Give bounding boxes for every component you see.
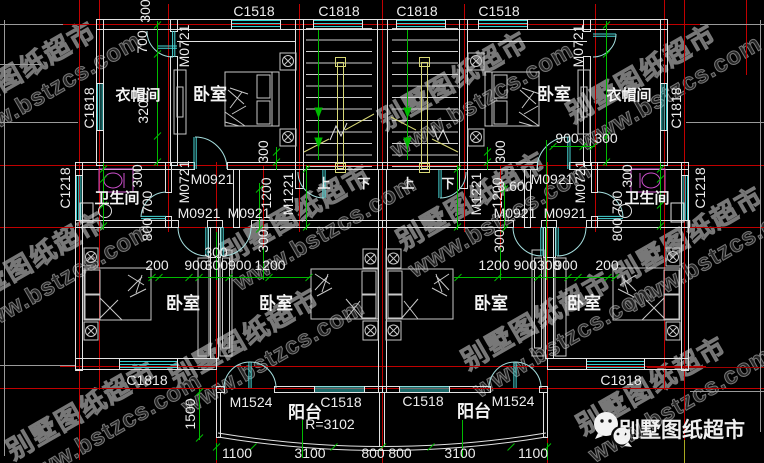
svg-text:C1518: C1518 xyxy=(478,3,519,19)
svg-text:下: 下 xyxy=(357,176,370,191)
svg-text:1100: 1100 xyxy=(222,445,252,461)
svg-text:300: 300 xyxy=(204,244,228,260)
svg-text:M0921: M0921 xyxy=(178,205,221,221)
svg-text:M1524: M1524 xyxy=(492,393,535,409)
svg-text:C1818: C1818 xyxy=(600,372,641,388)
svg-text:3200: 3200 xyxy=(135,92,151,123)
svg-text:M1221: M1221 xyxy=(468,172,484,215)
svg-text:别墅图纸超市: 别墅图纸超市 xyxy=(618,418,745,442)
svg-text:衣帽间: 衣帽间 xyxy=(606,86,651,104)
svg-text:卫生间: 卫生间 xyxy=(624,189,669,207)
svg-text:300: 300 xyxy=(255,229,271,253)
svg-text:C1218: C1218 xyxy=(692,167,708,208)
svg-text:M1524: M1524 xyxy=(230,394,273,410)
svg-text:300: 300 xyxy=(492,140,508,164)
svg-text:卧室: 卧室 xyxy=(193,84,227,104)
svg-text:M1221: M1221 xyxy=(280,172,296,215)
svg-text:卧室: 卧室 xyxy=(259,293,293,313)
svg-text:300: 300 xyxy=(619,164,635,188)
svg-text:M0921: M0921 xyxy=(191,171,234,187)
svg-text:M0921: M0921 xyxy=(544,205,587,221)
svg-text:M0721: M0721 xyxy=(570,24,586,67)
svg-text:下: 下 xyxy=(441,176,454,191)
svg-text:3100: 3100 xyxy=(444,445,475,461)
svg-text:1200: 1200 xyxy=(489,177,505,208)
svg-text:C1818: C1818 xyxy=(668,87,684,128)
svg-text:R=3102: R=3102 xyxy=(305,416,355,432)
svg-text:M0721: M0721 xyxy=(572,160,588,203)
svg-text:900: 900 xyxy=(555,130,579,146)
svg-text:800: 800 xyxy=(361,445,385,461)
svg-text:卧室: 卧室 xyxy=(166,293,200,313)
svg-text:900: 900 xyxy=(554,257,578,273)
svg-text:卫生间: 卫生间 xyxy=(94,189,139,207)
svg-text:300: 300 xyxy=(137,0,153,23)
svg-text:C1818: C1818 xyxy=(81,87,97,128)
svg-text:3100: 3100 xyxy=(294,445,325,461)
svg-text:300: 300 xyxy=(129,164,145,188)
svg-text:C1818: C1818 xyxy=(318,3,359,19)
svg-text:700: 700 xyxy=(134,30,150,54)
svg-text:M0721: M0721 xyxy=(176,160,192,203)
svg-text:200: 200 xyxy=(595,257,619,273)
svg-text:上: 上 xyxy=(317,176,330,191)
svg-text:1200: 1200 xyxy=(254,257,285,273)
svg-text:1500: 1500 xyxy=(182,398,198,429)
svg-text:800 700: 800 700 xyxy=(609,190,625,241)
svg-text:1200: 1200 xyxy=(258,177,274,208)
svg-text:C1818: C1818 xyxy=(396,3,437,19)
svg-text:卧室: 卧室 xyxy=(537,84,571,104)
svg-text:300: 300 xyxy=(491,229,507,253)
svg-text:800: 800 xyxy=(388,445,412,461)
svg-text:C1518: C1518 xyxy=(320,394,361,410)
svg-text:800 700: 800 700 xyxy=(139,190,155,241)
svg-text:阳台: 阳台 xyxy=(457,401,491,421)
svg-text:C1818: C1818 xyxy=(126,372,167,388)
svg-text:200: 200 xyxy=(145,257,169,273)
svg-text:上: 上 xyxy=(401,176,414,191)
svg-text:300: 300 xyxy=(594,130,618,146)
svg-text:卧室: 卧室 xyxy=(474,293,508,313)
svg-text:1100: 1100 xyxy=(518,445,548,461)
svg-text:C1518: C1518 xyxy=(233,3,274,19)
svg-text:M0921: M0921 xyxy=(531,171,574,187)
svg-text:卧室: 卧室 xyxy=(567,293,601,313)
svg-text:C1518: C1518 xyxy=(402,393,443,409)
svg-text:M0721: M0721 xyxy=(176,24,192,67)
svg-text:C1218: C1218 xyxy=(57,167,73,208)
svg-text:1200: 1200 xyxy=(478,257,509,273)
svg-text:300: 300 xyxy=(255,140,271,164)
